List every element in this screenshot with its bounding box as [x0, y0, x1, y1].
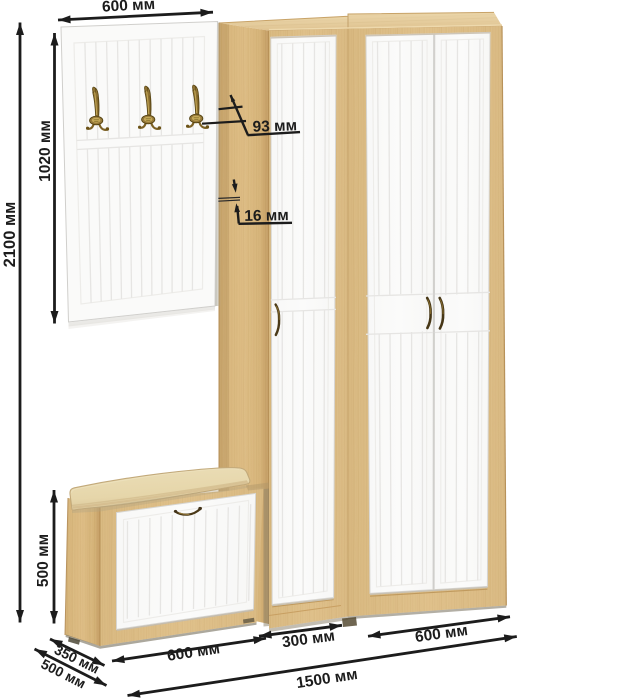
- svg-text:93 мм: 93 мм: [252, 117, 297, 136]
- svg-text:600 мм: 600 мм: [166, 640, 221, 665]
- svg-text:500 мм: 500 мм: [35, 534, 52, 587]
- svg-text:16 мм: 16 мм: [244, 207, 289, 225]
- svg-text:600 мм: 600 мм: [414, 622, 469, 646]
- svg-text:2100 мм: 2100 мм: [1, 202, 19, 268]
- svg-text:1020 мм: 1020 мм: [37, 120, 54, 182]
- svg-text:600 мм: 600 мм: [102, 0, 156, 16]
